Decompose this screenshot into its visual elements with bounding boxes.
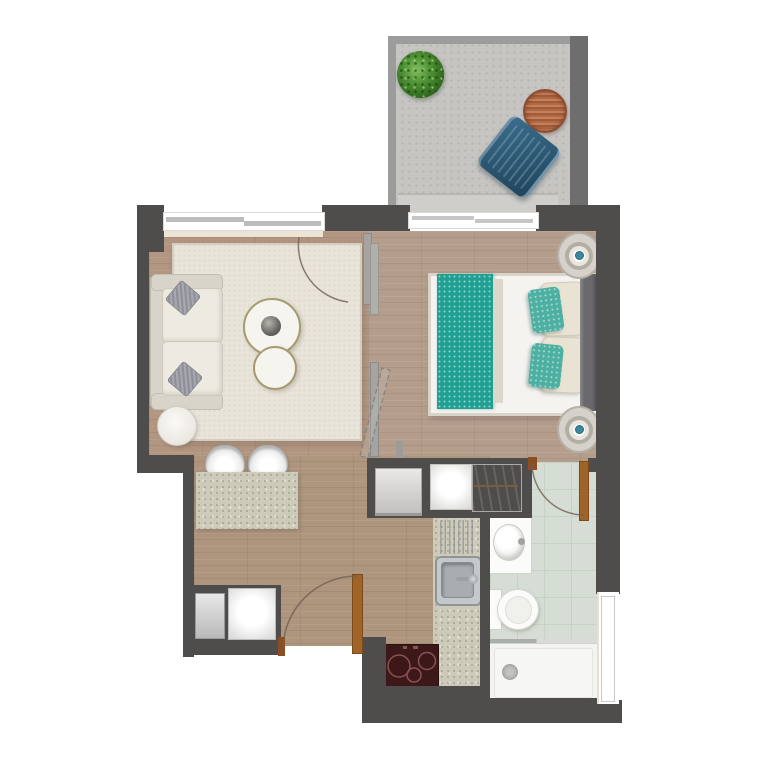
- teal-pillow: [527, 286, 565, 334]
- wall-bathroom-bottom: [483, 698, 598, 723]
- door-stop-marker: [396, 441, 403, 458]
- coffee-table-small: [253, 346, 297, 390]
- balcony-wall-top: [388, 36, 582, 44]
- round-side-table: [157, 406, 197, 446]
- bathroom-door-jamb: [528, 457, 537, 470]
- window-pane: [244, 221, 321, 226]
- closet-appliance: [195, 593, 225, 639]
- potted-plant: [397, 51, 444, 98]
- window-pane: [166, 217, 244, 222]
- faucet-knob: [468, 574, 478, 584]
- fridge-cabinet: [375, 468, 422, 516]
- wall-left-upper: [137, 207, 149, 457]
- nightstand: [557, 232, 601, 279]
- teal-pillow: [528, 342, 564, 389]
- shower-drain: [502, 664, 518, 680]
- wall-bathroom-left: [480, 512, 490, 700]
- wall-left-step: [137, 455, 194, 473]
- teal-runner-blanket: [437, 274, 493, 409]
- pocket-door-panel: [370, 243, 379, 315]
- wall-right: [596, 205, 620, 594]
- bathroom-window-pane: [601, 596, 615, 702]
- sliding-door-pane: [475, 219, 533, 223]
- balcony-wall-right: [570, 36, 588, 213]
- balcony-threshold-step: [398, 193, 558, 214]
- table-lamp: [565, 242, 593, 270]
- cooktop: [385, 644, 439, 688]
- wall-top-middle: [322, 205, 410, 231]
- dining-counter: [196, 472, 298, 529]
- pocket-door-panel: [370, 362, 379, 457]
- wardrobe-with-hangers: [472, 464, 522, 512]
- entry-door-jamb: [278, 637, 285, 656]
- closet-white-panel: [430, 464, 472, 510]
- entry-door-leaf: [352, 574, 363, 654]
- wall-bathroom-door-jamb: [588, 458, 596, 472]
- bathroom-door-leaf: [579, 461, 589, 521]
- wall-bottom-kitchen: [365, 686, 483, 723]
- sliding-door-pane: [412, 216, 474, 220]
- vanity-faucet: [518, 538, 525, 545]
- toilet-seat: [505, 596, 532, 624]
- wardrobe-rail: [474, 485, 518, 487]
- drainboard: [440, 520, 473, 554]
- nightstand: [557, 406, 601, 453]
- balcony-wall-left: [388, 36, 396, 212]
- floor-plan: [0, 0, 768, 768]
- table-lamp: [565, 416, 593, 444]
- decor-bowl-sphere: [261, 316, 281, 336]
- headboard: [580, 274, 597, 411]
- closet-appliance: [228, 588, 276, 640]
- duvet-fold-strip: [493, 279, 503, 403]
